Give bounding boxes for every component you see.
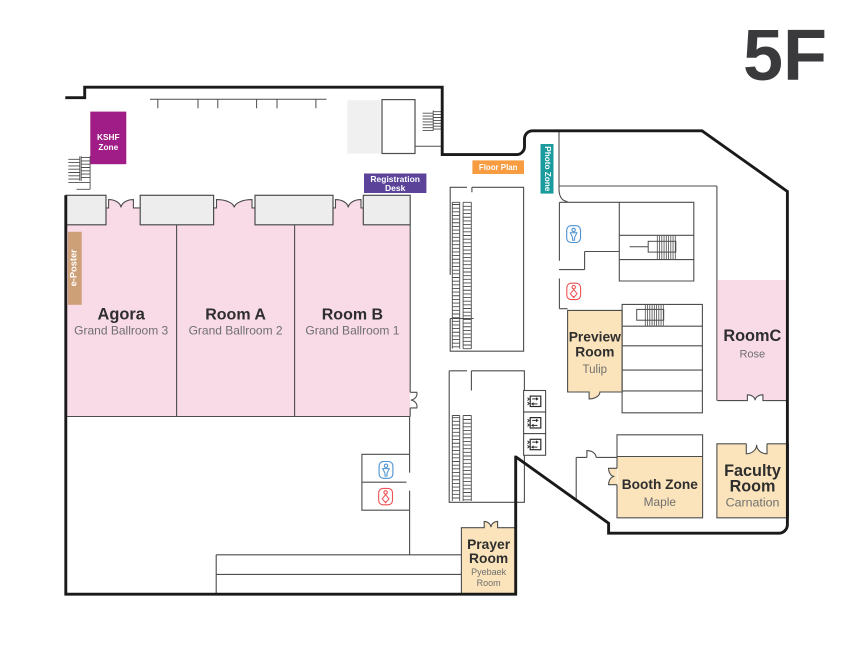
svg-text:Grand Ballroom 3: Grand Ballroom 3 [74, 323, 168, 337]
svg-text:Room: Room [469, 551, 508, 566]
svg-text:Preview: Preview [569, 330, 621, 345]
svg-text:Zone: Zone [98, 142, 118, 152]
svg-text:Photo Zone: Photo Zone [543, 146, 552, 191]
svg-text:Maple: Maple [644, 495, 677, 509]
svg-text:5F: 5F [743, 16, 827, 96]
svg-text:Room B: Room B [322, 307, 383, 324]
svg-text:Room: Room [730, 477, 776, 495]
svg-text:Grand Ballroom 1: Grand Ballroom 1 [305, 323, 399, 337]
svg-text:Grand Ballroom 2: Grand Ballroom 2 [189, 323, 283, 337]
svg-text:Room: Room [575, 345, 614, 360]
svg-text:e-Poster: e-Poster [69, 249, 79, 287]
svg-text:Desk: Desk [385, 183, 406, 193]
svg-text:Agora: Agora [98, 306, 146, 324]
svg-text:Room: Room [477, 578, 501, 588]
svg-text:Room A: Room A [205, 307, 266, 324]
svg-text:Carnation: Carnation [726, 496, 780, 510]
svg-text:KSHF: KSHF [97, 132, 120, 142]
svg-text:RoomC: RoomC [723, 327, 781, 345]
svg-text:Booth Zone: Booth Zone [622, 477, 698, 492]
svg-text:Prayer: Prayer [467, 537, 511, 552]
svg-text:Tulip: Tulip [583, 364, 608, 376]
svg-text:Rose: Rose [739, 349, 765, 361]
svg-text:Floor Plan: Floor Plan [479, 163, 518, 172]
svg-text:Pyebaek: Pyebaek [471, 567, 507, 577]
